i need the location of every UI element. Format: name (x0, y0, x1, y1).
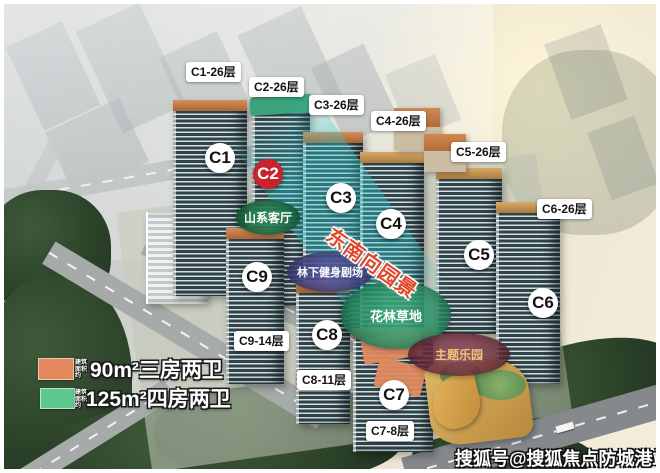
screenshot-frame: 山系客厅 林下健身剧场 花林草地 主题乐园 东南向园景 C1-26层 C2-26… (0, 0, 660, 473)
legend-prefix-line: 面积约 (75, 367, 87, 380)
badge-c8: C8 (312, 320, 342, 350)
amenity-label: 山系客厅 (244, 209, 292, 226)
floors-label-c1: C1-26层 (186, 62, 241, 82)
floors-label-c2: C2-26层 (249, 77, 304, 97)
floors-label-c9: C9-14层 (234, 331, 289, 351)
legend-prefix-90: 建筑 面积约 (75, 360, 90, 380)
legend-prefix-line: 建筑 (75, 360, 87, 366)
amenity-mountain-living-room: 山系客厅 (236, 200, 300, 235)
sohu-watermark: 搜狐号@搜狐焦点防城港站 (455, 445, 656, 469)
aerial-render-photo: 山系客厅 林下健身剧场 花林草地 主题乐园 东南向园景 C1-26层 C2-26… (4, 4, 656, 469)
legend-text-90: 90m²三房两卫 (90, 354, 223, 384)
building-c8 (296, 282, 350, 424)
badge-c7: C7 (379, 380, 409, 410)
amenity-label: 花林草地 (370, 306, 422, 325)
amenity-label: 主题乐园 (435, 346, 483, 363)
floors-label-c4: C4-26层 (371, 111, 426, 131)
floors-label-c5: C5-26层 (451, 142, 506, 162)
badge-c9: C9 (242, 262, 272, 292)
amenity-theme-park: 主题乐园 (408, 333, 510, 376)
badge-c3: C3 (326, 183, 356, 213)
badge-c6: C6 (528, 288, 558, 318)
legend-swatch-90 (38, 358, 74, 380)
roof-garden (474, 370, 526, 400)
badge-c2: C2 (253, 159, 283, 189)
badge-c5: C5 (464, 240, 494, 270)
building-c9 (226, 228, 284, 384)
floors-label-c3: C3-26层 (309, 95, 364, 115)
badge-c1: C1 (205, 143, 235, 173)
legend-text-125: 125m²四房两卫 (86, 383, 231, 413)
floors-label-c6: C6-26层 (537, 199, 592, 219)
floors-label-c8: C8-11层 (297, 370, 351, 390)
legend-swatch-125 (40, 388, 75, 409)
badge-c4: C4 (376, 209, 406, 239)
floors-label-c7: C7-8层 (366, 421, 414, 441)
